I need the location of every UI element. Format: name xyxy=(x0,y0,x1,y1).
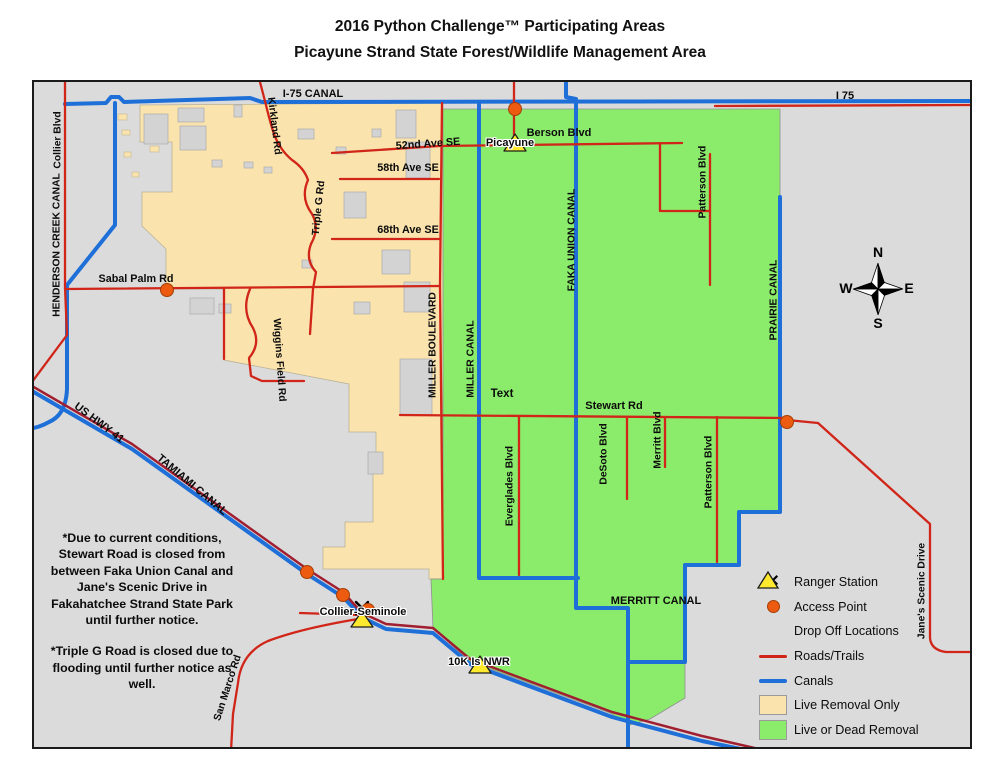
access-point-marker xyxy=(509,103,522,116)
legend-item-roads-trails: Roads/Trails xyxy=(756,644,968,669)
legend-item-drop-off: Drop Off Locations xyxy=(756,619,968,644)
live-removal-only-zone xyxy=(140,103,443,579)
live-removal-only-icon xyxy=(756,695,790,715)
legend-item-ranger-station: ✕Ranger Station xyxy=(756,570,968,595)
map-canvas: N S E W I-75 CANALI 75Kirkland Rd52nd Av… xyxy=(32,80,972,749)
collier-seminole-west-road xyxy=(300,613,360,615)
access-point-icon xyxy=(756,600,790,613)
legend-label: Drop Off Locations xyxy=(790,624,899,638)
legend-label: Live Removal Only xyxy=(790,698,900,712)
page-subtitle: Picayune Strand State Forest/Wildlife Ma… xyxy=(0,40,1000,66)
legend-item-canals: Canals xyxy=(756,668,968,693)
henderson-creek-canal-line xyxy=(34,103,115,428)
legend: ✕Ranger StationAccess PointDrop Off Loca… xyxy=(756,570,968,742)
legend-label: Access Point xyxy=(790,600,867,614)
i75-highway-road xyxy=(715,105,972,106)
legend-item-access-point: Access Point xyxy=(756,595,968,620)
closure-note: *Due to current conditions, Stewart Road… xyxy=(42,530,242,628)
compass-west: W xyxy=(839,280,852,296)
legend-item-live-or-dead-removal: Live or Dead Removal xyxy=(756,718,968,743)
page-title: 2016 Python Challenge™ Participating Are… xyxy=(0,14,1000,40)
compass-east: E xyxy=(904,280,913,296)
compass-rose xyxy=(853,263,903,315)
title-block: 2016 Python Challenge™ Participating Are… xyxy=(0,14,1000,67)
san-marco-road xyxy=(231,618,364,749)
access-point-marker xyxy=(781,416,794,429)
closure-notes: *Due to current conditions, Stewart Road… xyxy=(42,530,242,707)
live-or-dead-removal-icon xyxy=(756,720,790,740)
canals-icon xyxy=(756,679,790,683)
map-page: 2016 Python Challenge™ Participating Are… xyxy=(0,0,1000,773)
closure-note: *Triple G Road is closed due to flooding… xyxy=(42,643,242,692)
compass-north: N xyxy=(873,244,883,260)
legend-item-live-removal-only: Live Removal Only xyxy=(756,693,968,718)
legend-label: Canals xyxy=(790,674,833,688)
roads-trails-icon xyxy=(756,655,790,658)
access-point-marker xyxy=(301,566,314,579)
compass-south: S xyxy=(873,315,882,331)
access-point-marker xyxy=(161,284,174,297)
legend-label: Ranger Station xyxy=(790,575,878,589)
collier-blvd-road xyxy=(34,82,67,382)
legend-label: Live or Dead Removal xyxy=(790,723,919,737)
access-point-marker xyxy=(337,589,350,602)
legend-label: Roads/Trails xyxy=(790,649,864,663)
